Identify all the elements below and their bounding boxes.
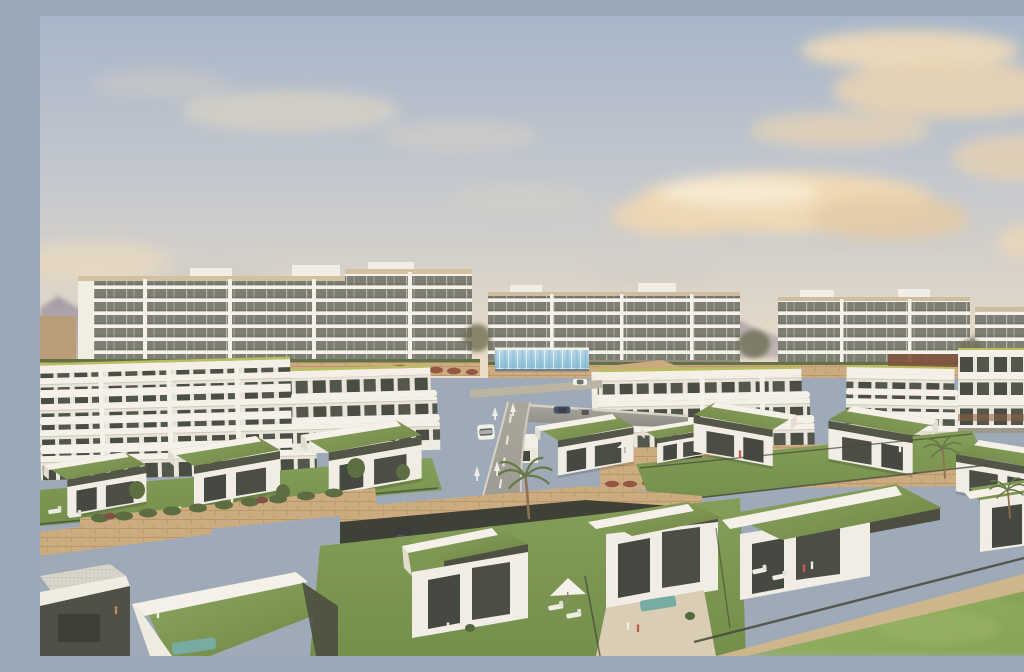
render-image bbox=[40, 16, 1024, 656]
scene-canvas bbox=[40, 16, 1024, 656]
light-wash bbox=[40, 16, 1024, 656]
